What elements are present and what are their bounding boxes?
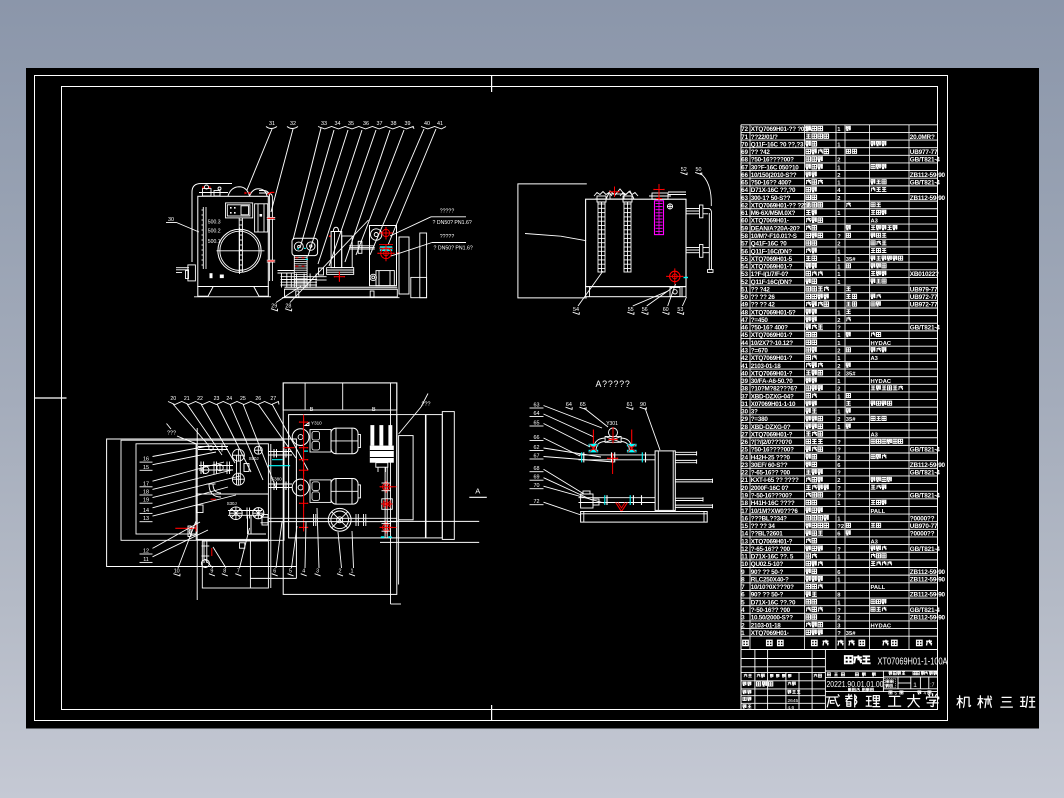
svg-text:26: 26 <box>255 396 261 402</box>
svg-text:30EF/ 60-S??: 30EF/ 60-S?? <box>751 462 788 469</box>
svg-text:?-50-16???00?: ?-50-16???00? <box>751 493 793 500</box>
svg-text:ZB112-59-90: ZB112-59-90 <box>910 576 946 583</box>
svg-text:3: 3 <box>741 615 745 622</box>
svg-text:65: 65 <box>580 402 586 408</box>
svg-text:65: 65 <box>741 180 748 187</box>
svg-text:HYDAC: HYDAC <box>871 623 892 629</box>
svg-text:XBD-DZXG-04?: XBD-DZXG-04? <box>751 393 794 400</box>
svg-text:28: 28 <box>741 424 748 431</box>
svg-text:6: 6 <box>741 592 745 599</box>
svg-text:XTQ7069H01-?? ?03A: XTQ7069H01-?? ?03A <box>751 126 813 133</box>
svg-text:25: 25 <box>741 447 748 454</box>
svg-text:58: 58 <box>741 233 748 240</box>
svg-text:1?F-I(1/7/F-0?: 1?F-I(1/7/F-0? <box>751 271 789 278</box>
svg-text:11: 11 <box>741 554 748 561</box>
svg-text:2: 2 <box>837 348 840 354</box>
svg-text:GB/T821-4: GB/T821-4 <box>910 325 940 332</box>
svg-text:ZB112-59-90: ZB112-59-90 <box>910 569 946 576</box>
svg-text:2: 2 <box>837 387 840 393</box>
svg-text:UB972-77: UB972-77 <box>910 294 938 301</box>
svg-text:61: 61 <box>741 210 748 217</box>
svg-text:35#: 35# <box>846 631 856 637</box>
svg-text:46: 46 <box>741 325 748 332</box>
svg-text:35#: 35# <box>846 371 856 377</box>
svg-text:XTQ7069H01-: XTQ7069H01- <box>751 630 789 637</box>
svg-text:Q11F-16C(DN?: Q11F-16C(DN? <box>751 279 792 286</box>
svg-text:Q41F-16C ?0: Q41F-16C ?0 <box>751 241 787 248</box>
svg-text:A?????: A????? <box>596 379 631 389</box>
svg-text:?50-16????00?: ?50-16????00? <box>751 157 794 164</box>
svg-text:47: 47 <box>741 317 748 324</box>
svg-text:2103-01-18: 2103-01-18 <box>751 622 781 629</box>
svg-text:27: 27 <box>270 396 276 402</box>
svg-text:10/M?-F10.01?-S: 10/M?-F10.01?-S <box>751 233 797 240</box>
svg-text:Y301: Y301 <box>606 421 618 427</box>
svg-text:?50-16? 400?: ?50-16? 400? <box>751 325 788 332</box>
svg-text:4.6: 4.6 <box>788 705 795 711</box>
svg-text:3: 3 <box>316 569 319 575</box>
svg-text:UB970-77: UB970-77 <box>910 523 938 530</box>
svg-text:B: B <box>372 407 376 413</box>
svg-text:?? ?? 42: ?? ?? 42 <box>751 302 776 309</box>
svg-text:8: 8 <box>741 576 745 583</box>
svg-text:51: 51 <box>741 286 748 293</box>
svg-text:ZB112-59-90: ZB112-59-90 <box>910 195 946 202</box>
svg-text:S30J: S30J <box>227 501 237 506</box>
svg-text:54: 54 <box>573 307 579 313</box>
svg-text:60: 60 <box>741 218 748 225</box>
svg-text:8: 8 <box>223 569 226 575</box>
svg-text:UB977-77: UB977-77 <box>910 149 938 156</box>
svg-text:?0000??: ?0000?? <box>910 515 935 522</box>
svg-text:49: 49 <box>741 302 748 309</box>
svg-text:23: 23 <box>214 396 220 402</box>
svg-text:Q11F-16C(DN?: Q11F-16C(DN? <box>751 248 792 255</box>
svg-text:31: 31 <box>269 121 275 127</box>
svg-text:5: 5 <box>289 569 292 575</box>
svg-text:XTQ7069H01-?: XTQ7069H01-? <box>751 431 793 438</box>
svg-text:H42H-25 ???0: H42H-25 ???0 <box>751 454 791 461</box>
svg-text:21: 21 <box>741 477 748 484</box>
svg-text:2: 2 <box>837 196 840 202</box>
svg-text:38: 38 <box>741 386 748 393</box>
svg-text:10/2X7?-10.12?: 10/2X7?-10.12? <box>751 340 793 347</box>
svg-text:43: 43 <box>741 347 748 354</box>
svg-text:ZB112-59-90: ZB112-59-90 <box>910 462 946 469</box>
svg-text:?: ? <box>837 547 841 553</box>
svg-text:?50-16?? 400?: ?50-16?? 400? <box>751 180 792 187</box>
svg-text:2: 2 <box>837 364 840 370</box>
svg-text:71: 71 <box>741 134 748 141</box>
svg-text:55: 55 <box>741 256 748 263</box>
svg-text:XTQ7069H01-: XTQ7069H01- <box>751 218 789 225</box>
svg-text:22: 22 <box>197 396 203 402</box>
svg-text:10: 10 <box>174 569 180 575</box>
svg-text:37: 37 <box>377 121 383 127</box>
svg-text:66: 66 <box>741 172 748 179</box>
svg-text:A3: A3 <box>871 539 879 545</box>
svg-text:?? ?? 34: ?? ?? 34 <box>751 523 776 530</box>
svg-text:9: 9 <box>741 569 745 576</box>
svg-text:70: 70 <box>741 141 748 148</box>
svg-text:?: ? <box>837 631 841 637</box>
svg-text:XTQ7069H01-?: XTQ7069H01-? <box>751 355 793 362</box>
svg-text:41: 41 <box>437 121 443 127</box>
svg-text:23: 23 <box>741 462 748 469</box>
svg-text:31: 31 <box>741 401 748 408</box>
svg-text:3?: 3? <box>751 409 758 416</box>
svg-text:Q11F-16C ?0 ??,?3: Q11F-16C ?0 ??,?3 <box>751 141 804 148</box>
svg-text:90? ?? 50-?: 90? ?? 50-? <box>751 569 784 576</box>
svg-text:90? ?? 50-?: 90? ?? 50-? <box>751 592 784 599</box>
svg-text:ZB112-59-90: ZB112-59-90 <box>910 592 946 599</box>
svg-text:S380: S380 <box>271 477 282 482</box>
svg-text:ZB112-59-90: ZB112-59-90 <box>910 615 946 622</box>
svg-text:62: 62 <box>741 202 748 209</box>
svg-text:57: 57 <box>741 241 748 248</box>
svg-text:56: 56 <box>741 248 748 255</box>
svg-text:? DN50? PN1.6?: ? DN50? PN1.6? <box>434 246 473 252</box>
svg-text:HYDAC: HYDAC <box>871 379 892 385</box>
svg-text:?-65-16?? ?00: ?-65-16?? ?00 <box>751 546 791 553</box>
svg-text:GB/T821-4: GB/T821-4 <box>910 447 940 454</box>
svg-text:D71X-16C ??.?0: D71X-16C ??.?0 <box>751 599 796 606</box>
svg-text:20: 20 <box>170 396 176 402</box>
svg-text:25: 25 <box>240 396 246 402</box>
svg-text:?: ? <box>837 440 841 446</box>
svg-text:26: 26 <box>741 439 748 446</box>
svg-text:500.2: 500.2 <box>208 229 221 235</box>
svg-text:1: 1 <box>351 569 354 575</box>
svg-text:A3: A3 <box>871 432 879 438</box>
svg-text:2: 2 <box>837 318 840 324</box>
svg-text:2: 2 <box>837 242 840 248</box>
svg-text:??BL?2601: ??BL?2601 <box>751 531 783 538</box>
svg-text:XT07069H01-1-100A: XT07069H01-1-100A <box>878 656 948 668</box>
svg-text:UB972-77: UB972-77 <box>910 302 938 309</box>
svg-text:56: 56 <box>642 307 648 313</box>
svg-text:24: 24 <box>226 396 232 402</box>
svg-text:39: 39 <box>741 378 748 385</box>
svg-text:33: 33 <box>321 121 327 127</box>
svg-text:17: 17 <box>741 508 748 515</box>
svg-text:53: 53 <box>741 271 748 278</box>
svg-text:GB/T821-4: GB/T821-4 <box>910 607 940 614</box>
svg-text:7: 7 <box>741 584 745 591</box>
svg-text:?: ? <box>837 608 841 614</box>
svg-text:38: 38 <box>391 121 397 127</box>
svg-text:35#: 35# <box>846 417 856 423</box>
svg-text:27: 27 <box>741 431 748 438</box>
svg-text:2: 2 <box>837 417 840 423</box>
svg-text:Y310: Y310 <box>311 421 322 426</box>
svg-text:52: 52 <box>681 167 687 173</box>
svg-text:19: 19 <box>741 493 748 500</box>
svg-text:HYDAC: HYDAC <box>871 341 892 347</box>
svg-text:?: ? <box>837 494 841 500</box>
svg-text:XTQ7069H01-?: XTQ7069H01-? <box>751 538 793 545</box>
svg-text:63: 63 <box>741 195 748 202</box>
svg-text:50: 50 <box>696 167 702 173</box>
svg-text:67: 67 <box>741 164 748 171</box>
svg-text:20.0MR?: 20.0MR? <box>910 134 935 141</box>
svg-text:???BL??34?: ???BL??34? <box>751 515 787 522</box>
svg-text:72: 72 <box>741 126 748 133</box>
svg-text:53: 53 <box>677 307 683 313</box>
svg-text:48: 48 <box>741 309 748 316</box>
svg-text:10/1M?XW0???6: 10/1M?XW0???6 <box>751 508 799 515</box>
svg-text:59: 59 <box>741 225 748 232</box>
svg-text:QU02.5-10?: QU02.5-10? <box>751 561 784 568</box>
svg-text:RLC250X40-?: RLC250X40-? <box>751 576 789 583</box>
svg-text:XTQ7069H01-?: XTQ7069H01-? <box>751 264 793 271</box>
svg-text:2: 2 <box>837 478 840 484</box>
svg-text::7: :7 <box>930 682 934 688</box>
svg-text:?10?M?82???6?: ?10?M?82???6? <box>751 386 798 393</box>
svg-text:S50J: S50J <box>249 456 259 461</box>
svg-text:52: 52 <box>741 279 748 286</box>
svg-text:2: 2 <box>837 455 840 461</box>
svg-text:15: 15 <box>741 523 748 530</box>
svg-text:M6-6X/M5M.0X?: M6-6X/M5M.0X? <box>751 210 796 217</box>
svg-text:40: 40 <box>424 121 430 127</box>
svg-text:2: 2 <box>741 622 745 629</box>
svg-text:PALL: PALL <box>871 585 886 591</box>
svg-text:2: 2 <box>339 569 342 575</box>
svg-text:69: 69 <box>741 149 748 156</box>
svg-text:61: 61 <box>627 402 633 408</box>
svg-text:90: 90 <box>640 402 646 408</box>
svg-text:12: 12 <box>741 546 748 553</box>
svg-text:35#: 35# <box>846 257 856 263</box>
svg-text:21: 21 <box>184 396 190 402</box>
svg-text:18: 18 <box>741 500 748 507</box>
svg-text:?: ? <box>837 326 841 332</box>
svg-text:XTQ7069H01-?: XTQ7069H01-? <box>751 370 793 377</box>
svg-text:DEAN/A?20A-20?: DEAN/A?20A-20? <box>751 225 800 232</box>
svg-text:4: 4 <box>741 607 745 614</box>
svg-text:50: 50 <box>741 294 748 301</box>
svg-text:14: 14 <box>741 531 748 538</box>
svg-text:?????: ????? <box>440 234 455 240</box>
svg-text:KXT-I-65 ?? ????: KXT-I-65 ?? ???? <box>751 477 799 484</box>
svg-text:42: 42 <box>741 355 748 362</box>
svg-text:?? ?42: ?? ?42 <box>751 149 771 156</box>
svg-text:GB/T821-4: GB/T821-4 <box>910 493 940 500</box>
svg-text:28: 28 <box>285 304 291 310</box>
svg-text:2: 2 <box>837 158 840 164</box>
svg-text:D71X-16C ??. 5: D71X-16C ??. 5 <box>751 554 794 561</box>
svg-text:XTQ7069H01-?: XTQ7069H01-? <box>751 332 793 339</box>
svg-text:?=670: ?=670 <box>751 347 769 354</box>
svg-text:37: 37 <box>741 393 748 400</box>
svg-text:500.3: 500.3 <box>208 219 221 225</box>
svg-text:?: ? <box>837 448 841 454</box>
svg-text:68: 68 <box>741 157 748 164</box>
svg-text:1: 1 <box>913 682 917 689</box>
svg-text:?: ? <box>837 234 841 240</box>
svg-text:XB01022?: XB01022? <box>910 271 939 278</box>
svg-text:10/10?0X???0?: 10/10?0X???0? <box>751 584 794 591</box>
svg-text:B: B <box>310 407 314 413</box>
svg-text:XTQ7069H01-5?: XTQ7069H01-5? <box>751 309 796 316</box>
svg-text:XTQ7069H01-?? ?253: XTQ7069H01-?? ?253 <box>751 202 812 209</box>
svg-text:30?F-16C 050?10: 30?F-16C 050?10 <box>751 164 799 171</box>
svg-text:29: 29 <box>741 416 748 423</box>
svg-text:60: 60 <box>663 307 669 313</box>
svg-text:XBD-DZXG-0?: XBD-DZXG-0? <box>751 424 791 431</box>
svg-text:5: 5 <box>741 599 745 606</box>
svg-text:55: 55 <box>628 307 634 313</box>
svg-text:64: 64 <box>566 402 572 408</box>
svg-text:2: 2 <box>837 371 840 377</box>
svg-text:7: 7 <box>237 569 240 575</box>
svg-text:?? ?42: ?? ?42 <box>751 286 771 293</box>
svg-text:10.50/2000-S??: 10.50/2000-S?? <box>751 615 793 622</box>
svg-text:64: 64 <box>741 187 748 194</box>
svg-text:20: 20 <box>741 485 748 492</box>
svg-text:54: 54 <box>741 264 748 271</box>
svg-text:GB/T821-4: GB/T821-4 <box>910 157 940 164</box>
svg-text:44: 44 <box>741 340 748 347</box>
svg-text:?2: ?2 <box>837 524 844 530</box>
svg-text:?=450: ?=450 <box>751 317 769 324</box>
svg-text:?0000??: ?0000?? <box>910 531 935 538</box>
svg-text:36: 36 <box>363 121 369 127</box>
svg-text:30/FA-A6-50.?0: 30/FA-A6-50.?0 <box>751 378 793 385</box>
svg-text:ZB112-59-90: ZB112-59-90 <box>910 172 946 179</box>
svg-text:XTQ7069H01-5: XTQ7069H01-5 <box>751 256 793 263</box>
svg-text:10: 10 <box>741 561 748 568</box>
svg-text:6: 6 <box>273 569 276 575</box>
svg-text:2: 2 <box>837 616 840 622</box>
svg-text:??22/01/?: ??22/01/? <box>751 134 778 141</box>
svg-text:GB/T821-4: GB/T821-4 <box>910 470 940 477</box>
svg-text:?50-16????00?: ?50-16????00? <box>751 447 794 454</box>
svg-text:?: ? <box>837 486 841 492</box>
svg-text:GB/T821-4: GB/T821-4 <box>910 546 940 553</box>
svg-text:16: 16 <box>741 515 748 522</box>
svg-text:?[?/|2/0???0?0: ?[?/|2/0???0?0 <box>751 439 793 446</box>
svg-text:GB/T821-4: GB/T821-4 <box>910 180 940 187</box>
svg-text:13: 13 <box>741 538 748 545</box>
svg-text:?=380: ?=380 <box>751 416 769 423</box>
svg-text:32: 32 <box>290 121 296 127</box>
svg-text:35: 35 <box>348 121 354 127</box>
svg-text:A: A <box>475 487 480 496</box>
svg-text:40: 40 <box>741 370 748 377</box>
svg-text:? DN50? PN1.6?: ? DN50? PN1.6? <box>433 220 472 226</box>
svg-text:UB979-77: UB979-77 <box>910 286 938 293</box>
svg-text:41: 41 <box>741 363 748 370</box>
svg-text:5: 5 <box>895 690 898 695</box>
svg-text:H41H-16C ????: H41H-16C ???? <box>751 500 795 507</box>
svg-text:24: 24 <box>741 454 748 461</box>
svg-text:39: 39 <box>405 121 411 127</box>
svg-text:D71X-16C ??,?0: D71X-16C ??,?0 <box>751 187 796 194</box>
svg-text:29: 29 <box>271 304 277 310</box>
svg-text:2000F-16C 0?: 2000F-16C 0? <box>751 485 789 492</box>
svg-text:?: ? <box>837 471 841 477</box>
svg-text:2103-01-18: 2103-01-18 <box>751 363 781 370</box>
svg-text:PALL: PALL <box>871 509 886 515</box>
svg-text:?? ?? 26: ?? ?? 26 <box>751 294 776 301</box>
svg-text:?-50-16?? ?00: ?-50-16?? ?00 <box>751 607 791 614</box>
svg-text:10/150(2010-S??: 10/150(2010-S?? <box>751 172 797 179</box>
svg-text:300-1? 50-S??: 300-1? 50-S?? <box>751 195 791 202</box>
svg-text:22: 22 <box>741 470 748 477</box>
svg-text:???: ??? <box>167 431 176 437</box>
svg-text:30: 30 <box>741 409 748 416</box>
svg-text:9: 9 <box>210 569 213 575</box>
svg-text:?????: ????? <box>440 209 455 215</box>
svg-text:34: 34 <box>335 121 341 127</box>
svg-text:2645: 2645 <box>788 698 799 704</box>
svg-text:A3: A3 <box>871 356 879 362</box>
svg-text:4: 4 <box>924 690 927 695</box>
svg-text:2: 2 <box>837 173 840 179</box>
svg-text:?-65-16?? ?00: ?-65-16?? ?00 <box>751 470 791 477</box>
svg-text:20221.90.01.01.00: 20221.90.01.01.00 <box>827 679 884 689</box>
svg-text:45: 45 <box>741 332 748 339</box>
svg-text:X07069H01-1-10: X07069H01-1-10 <box>751 401 796 408</box>
svg-text:A3: A3 <box>871 219 879 225</box>
svg-text:4: 4 <box>302 569 305 575</box>
svg-text:1: 1 <box>741 630 745 637</box>
